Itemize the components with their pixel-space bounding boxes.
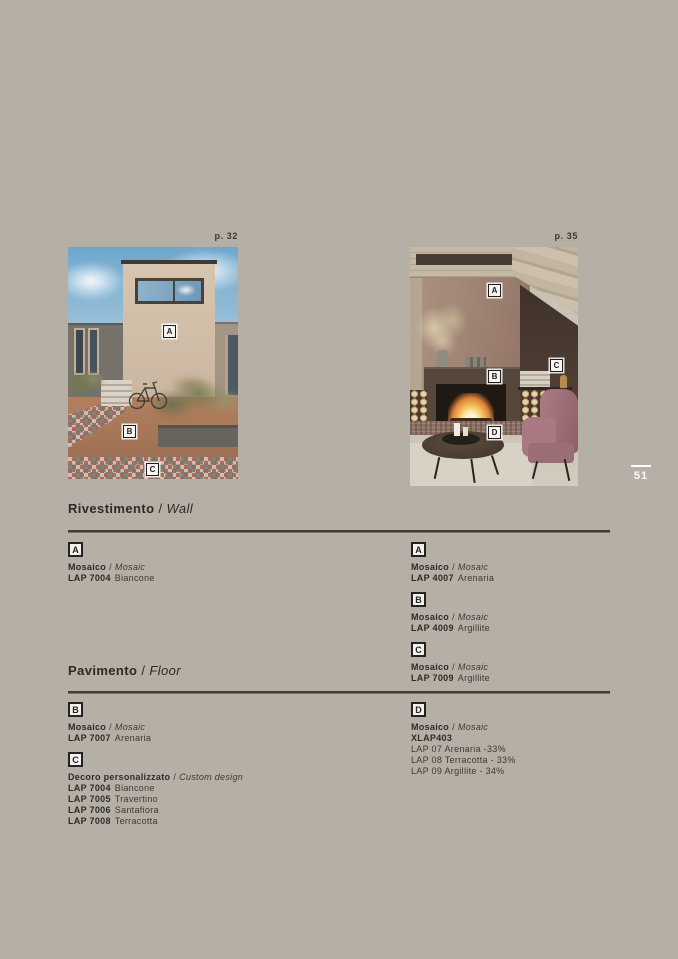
marker-letter: A	[72, 545, 79, 555]
marker-letter: C	[415, 645, 422, 655]
planter-box	[158, 425, 238, 447]
section-title-it: Rivestimento	[68, 501, 154, 516]
product-type: Mosaico/Mosaic	[411, 722, 631, 733]
window-mullion	[173, 281, 175, 301]
marker-letter: B	[127, 427, 133, 436]
marker-box: B	[411, 592, 426, 607]
product-line: LAP 4009Argillite	[411, 623, 631, 634]
type-en: Mosaic	[458, 662, 488, 672]
product-code: LAP 7007	[68, 733, 111, 743]
floor-left-column: B Mosaico/Mosaic LAP 7007Arenaria C Deco…	[68, 702, 368, 835]
type-it: Mosaico	[68, 562, 106, 572]
fireplace-mantel	[424, 367, 520, 384]
page-number: 51	[630, 470, 652, 482]
marker-letter: C	[150, 465, 156, 474]
product-name: LAP 09 Argillite - 34%	[411, 766, 504, 776]
product-code: LAP 7005	[68, 794, 111, 804]
cloud-reflection	[176, 284, 196, 296]
product-line: LAP 7005Travertino	[68, 794, 368, 805]
product-entry: B Mosaico/Mosaic LAP 7007Arenaria	[68, 702, 368, 744]
product-name: Arenaria	[458, 573, 494, 583]
product-line: LAP 09 Argillite - 34%	[411, 766, 631, 777]
cloud	[68, 261, 126, 301]
product-entry: D Mosaico/Mosaic XLAP403 LAP 07 Arenaria…	[411, 702, 631, 777]
type-it: Mosaico	[411, 562, 449, 572]
product-code: LAP 4009	[411, 623, 454, 633]
product-entry: A Mosaico/Mosaic LAP 7004Biancone	[68, 542, 368, 584]
section-rule-floor	[68, 691, 610, 694]
photo-marker-d: D	[488, 426, 501, 439]
type-separator: /	[452, 722, 455, 732]
product-name: Biancone	[115, 573, 155, 583]
photo-marker-a: A	[488, 284, 501, 297]
product-name: Terracotta	[115, 816, 158, 826]
photo-left-page-ref: p. 32	[68, 231, 238, 241]
wall-right-column: A Mosaico/Mosaic LAP 4007Arenaria B Mosa…	[411, 542, 631, 692]
marker-box: C	[68, 752, 83, 767]
product-name: Arenaria	[115, 733, 151, 743]
product-line: LAP 4007Arenaria	[411, 573, 631, 584]
product-code: LAP 7004	[68, 573, 111, 583]
page-number-block: 51	[630, 465, 652, 482]
shelf-bottle	[560, 375, 567, 388]
type-separator: /	[173, 772, 176, 782]
type-it: Mosaico	[68, 722, 106, 732]
candle	[454, 423, 460, 436]
marker-letter: B	[72, 705, 79, 715]
catalog-page: { "page": { "number": "51", "bg_color": …	[0, 0, 678, 959]
photo-exterior-house: A B C	[68, 247, 238, 479]
product-code: LAP 7008	[68, 816, 111, 826]
shelf-books	[520, 371, 550, 387]
product-name: Biancone	[115, 783, 155, 793]
marker-letter: A	[492, 286, 498, 295]
type-separator: /	[109, 722, 112, 732]
product-name: Argillite	[458, 623, 490, 633]
section-title-en: Wall	[166, 501, 193, 516]
product-line: LAP 7006Santafiora	[68, 805, 368, 816]
product-code: LAP 4007	[411, 573, 454, 583]
grass-left	[68, 357, 104, 407]
marker-box: A	[68, 542, 83, 557]
type-en: Custom design	[179, 772, 243, 782]
title-separator: /	[158, 501, 162, 516]
product-name: LAP 07 Arenaria -33%	[411, 744, 506, 754]
product-line: LAP 7009Argillite	[411, 673, 631, 684]
marker-letter: A	[167, 327, 173, 336]
marker-box: B	[68, 702, 83, 717]
product-code: LAP 7006	[68, 805, 111, 815]
product-line: LAP 7004Biancone	[68, 573, 368, 584]
marker-letter: B	[492, 372, 498, 381]
photo-marker-c: C	[550, 359, 563, 372]
mantel-decor-books	[466, 357, 486, 367]
product-line: LAP 7007Arenaria	[68, 733, 368, 744]
marker-letter: B	[415, 595, 422, 605]
section-title-it: Pavimento	[68, 663, 137, 678]
type-it: Decoro personalizzato	[68, 772, 170, 782]
marker-letter: A	[415, 545, 422, 555]
product-entry: B Mosaico/Mosaic LAP 4009Argillite	[411, 592, 631, 634]
product-name: Travertino	[115, 794, 158, 804]
product-name: Santafiora	[115, 805, 159, 815]
type-en: Mosaic	[115, 722, 145, 732]
floor-right-column: D Mosaico/Mosaic XLAP403 LAP 07 Arenaria…	[411, 702, 631, 785]
product-name: Argillite	[458, 673, 490, 683]
product-type: Mosaico/Mosaic	[68, 562, 368, 573]
photo-marker-a: A	[163, 325, 176, 338]
marker-letter: D	[415, 705, 422, 715]
product-line: LAP 7004Biancone	[68, 783, 368, 794]
marker-letter: D	[492, 428, 498, 437]
title-separator: /	[141, 663, 145, 678]
product-line: XLAP403	[411, 733, 631, 744]
product-name: LAP 08 Terracotta - 33%	[411, 755, 516, 765]
photo-marker-c: C	[146, 463, 159, 476]
photo-right-page-ref: p. 35	[410, 231, 578, 241]
type-separator: /	[452, 662, 455, 672]
product-type: Decoro personalizzato/Custom design	[68, 772, 368, 783]
product-code: XLAP403	[411, 733, 452, 743]
marker-box: A	[411, 542, 426, 557]
page-number-rule	[631, 465, 651, 467]
bicycle	[128, 373, 170, 411]
type-it: Mosaico	[411, 722, 449, 732]
section-rule-wall	[68, 530, 610, 533]
section-title-floor: Pavimento/Floor	[68, 663, 181, 678]
type-en: Mosaic	[115, 562, 145, 572]
product-code: LAP 7009	[411, 673, 454, 683]
product-line: LAP 08 Terracotta - 33%	[411, 755, 631, 766]
tower-roof-edge	[121, 260, 217, 264]
armchair-seat	[528, 443, 574, 463]
marker-letter: C	[554, 361, 560, 370]
product-entry: C Decoro personalizzato/Custom design LA…	[68, 752, 368, 827]
type-en: Mosaic	[458, 612, 488, 622]
product-type: Mosaico/Mosaic	[411, 612, 631, 623]
tower-window-frame	[135, 278, 204, 304]
section-title-en: Floor	[149, 663, 181, 678]
ceiling-recess	[416, 254, 528, 265]
product-type: Mosaico/Mosaic	[68, 722, 368, 733]
photo-marker-b: B	[488, 370, 501, 383]
product-type: Mosaico/Mosaic	[411, 562, 631, 573]
firebox	[436, 384, 506, 423]
product-code: LAP 7004	[68, 783, 111, 793]
wall-left-column: A Mosaico/Mosaic LAP 7004Biancone	[68, 542, 368, 592]
marker-box: C	[411, 642, 426, 657]
firewood-stack-left	[410, 390, 427, 423]
photo-marker-b: B	[123, 425, 136, 438]
table-tray	[442, 433, 480, 445]
section-title-wall: Rivestimento/Wall	[68, 501, 193, 516]
product-line: LAP 07 Arenaria -33%	[411, 744, 631, 755]
type-it: Mosaico	[411, 612, 449, 622]
product-line: LAP 7008Terracotta	[68, 816, 368, 827]
type-separator: /	[452, 562, 455, 572]
candle	[463, 427, 468, 436]
product-entry: C Mosaico/Mosaic LAP 7009Argillite	[411, 642, 631, 684]
type-separator: /	[109, 562, 112, 572]
vase	[437, 350, 448, 367]
type-en: Mosaic	[458, 562, 488, 572]
type-separator: /	[452, 612, 455, 622]
product-entry: A Mosaico/Mosaic LAP 4007Arenaria	[411, 542, 631, 584]
type-en: Mosaic	[458, 722, 488, 732]
marker-letter: C	[72, 755, 79, 765]
type-it: Mosaico	[411, 662, 449, 672]
photo-interior-fireplace: A B C D	[410, 247, 578, 486]
marker-box: D	[411, 702, 426, 717]
product-type: Mosaico/Mosaic	[411, 662, 631, 673]
